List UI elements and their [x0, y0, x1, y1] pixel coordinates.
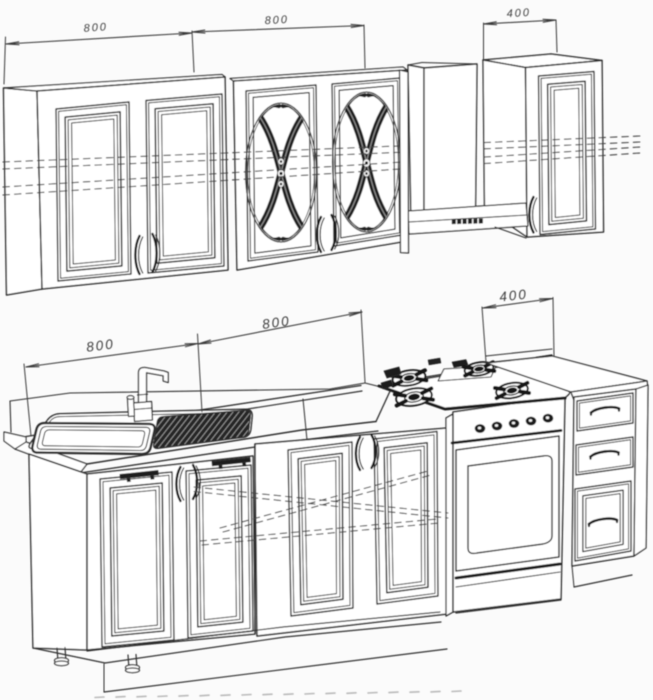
- svg-text:800: 800: [264, 14, 289, 27]
- svg-text:400: 400: [506, 7, 531, 20]
- svg-text:800: 800: [83, 21, 108, 35]
- svg-text:400: 400: [499, 287, 529, 305]
